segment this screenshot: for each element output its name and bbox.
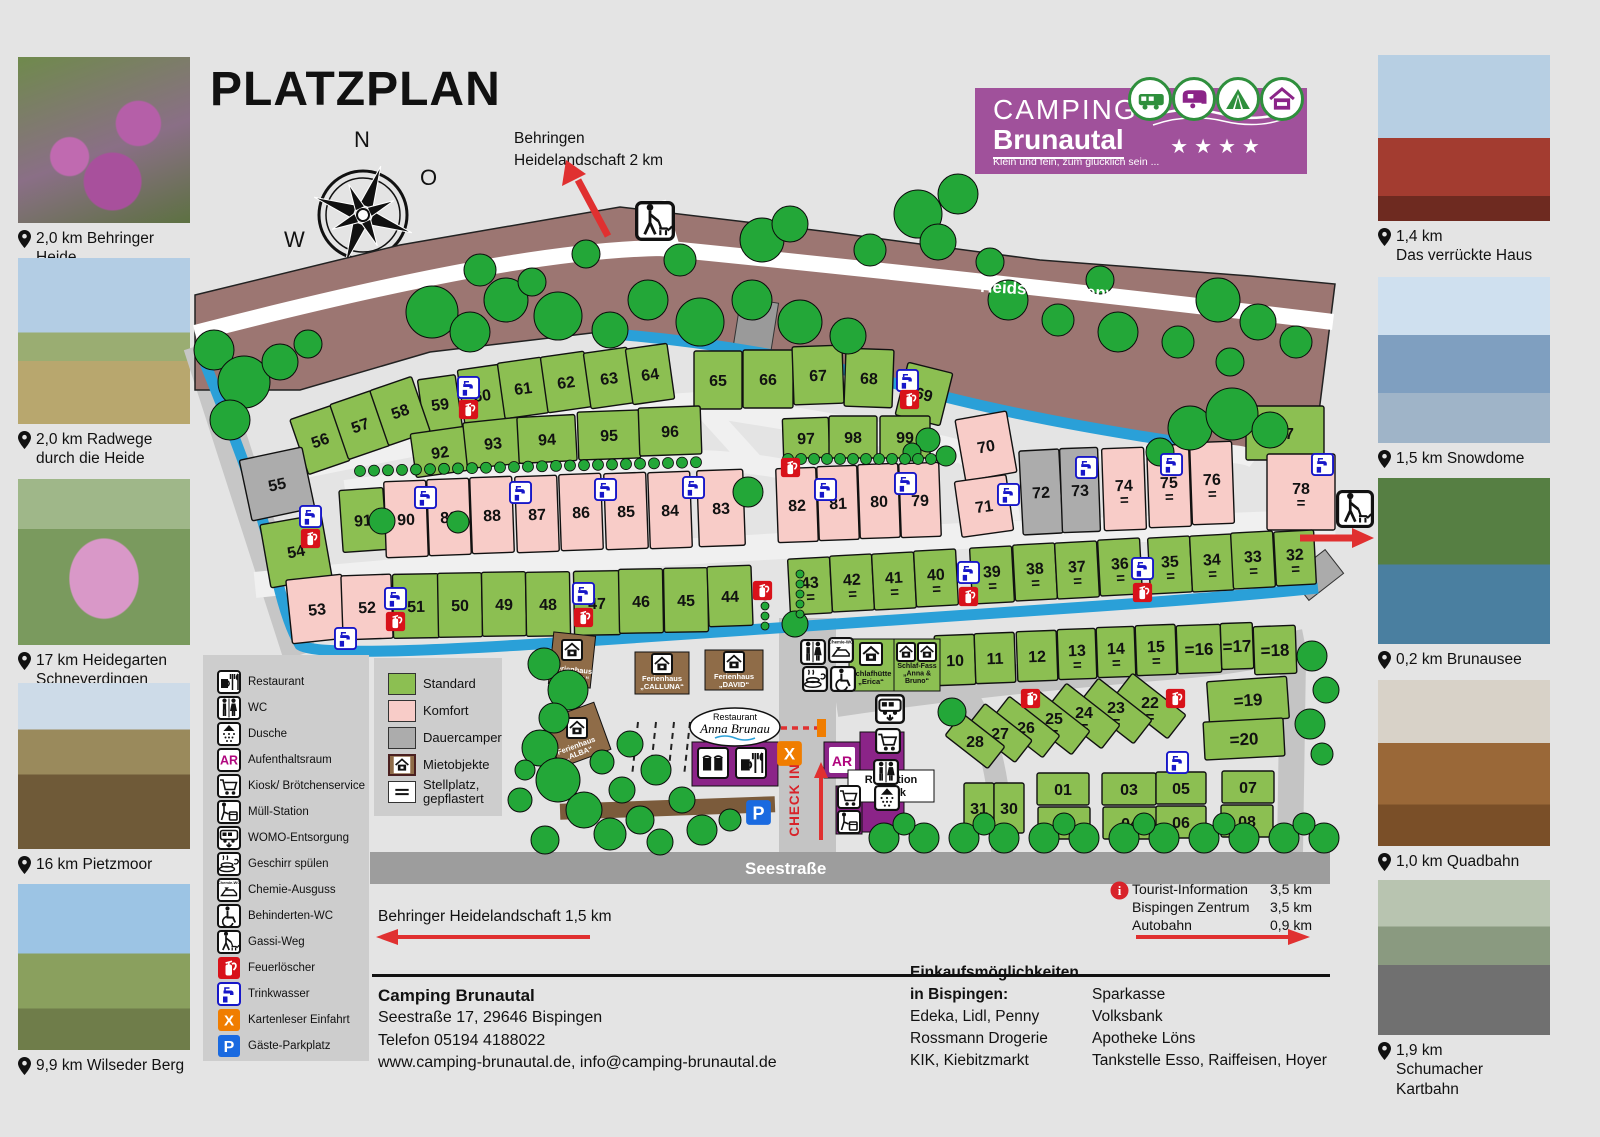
svg-text:=: = [1073,573,1083,590]
kartenleser-icon: X [776,740,803,767]
shopping-item: KIK, Kiebitzmarkt [910,1050,1079,1072]
plot-44: 44 [707,565,753,626]
distance-value: 3,5 km [1270,898,1312,916]
svg-text:33: 33 [1244,549,1263,567]
svg-text:=: = [1116,570,1126,587]
shopping-item: Edeka, Lidl, Penny [910,1006,1079,1028]
plot-52: 52 [341,574,393,640]
svg-text:=: = [890,584,900,601]
feuerloescher-icon [300,528,321,549]
svg-text:22: 22 [1141,695,1159,712]
wc-icon [217,696,241,720]
svg-text:59: 59 [430,396,450,415]
legend-label: Aufenthaltsraum [248,754,332,766]
svg-text:57: 57 [349,415,371,437]
legend-type-mietobjekte: Mietobjekte [388,751,502,778]
plot-03: 03 [1102,773,1156,805]
plot-27: 27 [968,703,1033,762]
svg-text:=: = [1152,653,1162,670]
svg-text:=: = [1120,492,1130,509]
plot-43: 43= [788,557,833,615]
legend-label: Behinderten-WC [248,910,333,922]
plot-90: 90 [384,480,429,557]
legend-item-restaurant: Restaurant [217,669,369,695]
svg-text:39: 39 [983,564,1002,582]
svg-text:=: = [1112,714,1121,731]
plot-01: 01 [1037,773,1089,805]
map-pin-icon [1378,651,1391,669]
feuerloescher-icon [573,607,594,628]
map-labels: Heidschnuckenweg CHECK IN [376,160,1374,945]
plot-95: 95 [577,410,641,460]
photo-snowdome: 1,5 km Snowdome [1378,277,1550,468]
buildings: Ferienhaus„BONITA“ Ferienhaus„CALLUNA“ F… [543,632,940,834]
plot-35: 35= [1148,536,1193,594]
plot-72: 72 [1019,449,1063,535]
plot-31: 31 [964,783,994,833]
legend-label: Stellplatz, gepflastert [423,778,484,805]
plot-15: 15= [1135,624,1177,675]
svg-text:=: = [1165,489,1175,506]
distance-value: 3,5 km [1270,880,1312,898]
plot-85: 85 [604,472,649,549]
trinkwasser-icon [594,478,617,501]
legend-label: WOMO-Entsorgung [248,832,349,844]
svg-text:30: 30 [1000,801,1018,818]
svg-text:Schlafhütte„Erica“: Schlafhütte„Erica“ [851,669,892,686]
legend-item-kiosk: Kiosk/ Brötchenservice [217,773,369,799]
kiosk-icon [217,774,241,798]
plot-39: 39= [970,546,1015,604]
page-title: PLATZPLAN [210,62,501,117]
plot-30: 30 [994,783,1024,833]
svg-text:02: 02 [1055,816,1073,833]
map-pin-icon [18,230,31,248]
legend-item-aufenthaltsraum: ARAufenthaltsraum [217,747,369,773]
footer-divider [372,974,1330,977]
info-icon: i [1110,881,1129,903]
womo-icon [875,694,905,724]
svg-text:65: 65 [709,373,727,390]
svg-text:82: 82 [788,498,806,516]
svg-text:=: = [1297,495,1306,512]
compass-icon [288,135,438,285]
svg-text:28: 28 [966,734,984,751]
legend-label: Feuerlöscher [248,962,315,974]
plot-05: 05 [1156,772,1206,804]
logo-line1: CAMPING [993,94,1138,126]
legend-item-feuerloescher: Feuerlöscher [217,955,369,981]
trinkwasser-icon [509,481,532,504]
svg-text:03: 03 [1120,782,1138,799]
svg-text:=: = [988,578,998,595]
plot-70: 70 [955,411,1017,481]
plot-19: =19 [1207,676,1290,723]
photo-radwege: 2,0 km Radwege durch die Heide [18,258,190,469]
svg-text:Anna Brunau: Anna Brunau [699,721,770,736]
plot-87: 87 [515,475,560,552]
legend-item-gassi: Gassi-Weg [217,929,369,955]
haus-icon [897,643,915,661]
plot-51: 51 [392,574,439,639]
plot-34: 34= [1190,534,1235,592]
plot-96: 96 [638,406,702,456]
distance-value: 0,9 km [1270,916,1312,934]
plot-88: 88 [470,476,515,553]
compass-north: N [354,127,370,153]
svg-text:69: 69 [913,385,934,406]
svg-text:87: 87 [528,507,546,525]
ferienhaus-calluna: Ferienhaus„CALLUNA“ [635,652,689,694]
shopping-item: Tankstelle Esso, Raiffeisen, Hoyer [1092,1050,1327,1072]
plot-45: 45 [663,568,708,633]
plot-92: 92 [410,426,470,477]
svg-text:01: 01 [1054,782,1072,799]
trinkwasser-icon [414,486,437,509]
plot-54: 54 [260,514,332,588]
plot-97: 97 [782,417,829,459]
restaurant-icon [217,670,241,694]
trinkwasser-icon [572,582,595,605]
haus-icon [652,654,672,674]
svg-text:91: 91 [354,512,373,530]
legend-type-dauercamper: Dauercamper [388,724,502,751]
plot-23: 23= [1080,678,1152,744]
svg-text:66: 66 [759,372,777,389]
behringen-arrow-label: Behringen Heidelandschaft 2 km [514,128,663,171]
feuerloescher-icon [217,956,241,980]
plot-24: 24= [1048,683,1120,749]
plot-69: 69 [895,362,953,426]
svg-text:=: = [1112,655,1122,672]
svg-text:93: 93 [483,435,503,454]
distance-label: Tourist-Information [1132,880,1248,898]
plot-58: 58 [370,376,430,445]
svg-text:81: 81 [829,496,847,514]
svg-text:25: 25 [1045,711,1063,728]
compass-rose: N O W S [288,135,438,285]
pitch-type-legend: StandardKomfortDauercamperMietobjekteSte… [374,658,502,816]
plot-04: 04 [1103,807,1157,839]
photo-brunausee: 0,2 km Brunausee [1378,478,1550,669]
aufenthaltsraum-icon: AR [217,748,241,772]
plot-17: =17 [1220,622,1254,669]
plot-48: 48 [525,572,570,637]
trinkwasser-icon [814,478,837,501]
haus-icon [562,640,582,660]
svg-text:=: = [1208,566,1218,583]
plot-75: 75= [1147,444,1192,527]
campsite-street: Seestraße 17, 29646 Bispingen [378,1007,777,1029]
plot-26: 26 [992,696,1060,757]
photo-kartbahn: 1,9 km Schumacher Kartbahn [1378,880,1550,1099]
legend-label: Standard [423,677,476,691]
plot-78: 78= [1267,454,1335,530]
plot-56: 56 [290,405,350,474]
shopping-block-2: Sparkasse Volksbank Apotheke Löns Tankst… [1092,984,1327,1072]
legend-label: Gassi-Weg [248,936,305,948]
svg-text:=: = [1166,568,1176,585]
svg-text:80: 80 [870,494,888,512]
plot-20: =20 [1203,718,1285,760]
plot-50: 50 [437,573,482,638]
plot-80: 80 [858,463,901,538]
svg-text:=16: =16 [1184,640,1213,660]
svg-text:89: 89 [440,510,458,528]
motorhome-icon [1128,77,1172,121]
trinkwasser-icon [1131,557,1154,580]
trinkwasser-icon [1160,453,1183,476]
svg-text:78: 78 [1292,481,1310,498]
legend-label: Kiosk/ Brötchenservice [248,780,365,792]
svg-text:73: 73 [1071,483,1089,501]
svg-text:71: 71 [974,498,994,517]
chemie-icon: Chemie-WC [217,878,241,902]
svg-text:85: 85 [617,504,635,522]
schlafhuette-erica: Schlafhütte„Erica“ [849,639,894,691]
svg-text:08: 08 [1238,814,1256,831]
legend-type-komfort: Komfort [388,697,502,724]
svg-text:AR: AR [220,754,238,768]
ferienhaus-bonita: Ferienhaus„BONITA“ [548,632,595,688]
legend-label: WC [248,702,267,714]
svg-text:Ferienhaus„DAVID“: Ferienhaus„DAVID“ [714,672,754,689]
plot-11: 11 [974,632,1016,683]
plot-94: 94 [517,415,577,464]
svg-text:45: 45 [677,593,695,610]
trinkwasser-icon [457,376,480,399]
plot-33: 33= [1231,531,1276,589]
legend-label: Restaurant [248,676,304,688]
gassi-weg-sign [635,201,675,241]
plot-32: 32= [1274,530,1317,586]
svg-text:=18: =18 [1260,641,1289,661]
svg-text:04: 04 [1121,816,1139,833]
legend-label: Komfort [423,704,469,718]
feuerloescher-icon [899,389,920,410]
trinkwasser-icon [1166,751,1189,774]
compass-west: W [284,227,305,253]
svg-text:=20: =20 [1229,729,1259,749]
svg-text:10: 10 [946,653,964,671]
muell-icon [837,810,861,834]
svg-text:64: 64 [640,366,660,385]
haus-icon [918,643,936,661]
svg-text:15: 15 [1147,639,1165,657]
plot-55: 55 [239,447,314,521]
svg-text:=: = [1249,563,1259,580]
trinkwasser-icon [997,483,1020,506]
svg-text:86: 86 [572,505,590,523]
legend-type-stellplatz: Stellplatz, gepflastert [388,778,502,805]
campsite-name: Camping Brunautal [378,984,777,1007]
legend-label: Mietobjekte [423,758,489,772]
plot-38: 38= [1013,543,1058,601]
legend-label: Dauercamper [423,731,502,745]
plot-41: 41= [872,552,917,610]
legend-item-geschirr: Geschirr spülen [217,851,369,877]
svg-text:07: 07 [1239,780,1257,797]
svg-text:44: 44 [721,589,739,607]
svg-text:=: = [806,589,816,606]
svg-text:P: P [752,803,764,823]
attraction-caption: 2,0 km Radwege durch die Heide [36,430,152,469]
geschirr-icon [802,666,828,692]
svg-text:83: 83 [712,501,730,519]
parkplatz-icon: P [217,1034,241,1058]
svg-text:CHECK IN: CHECK IN [787,763,802,836]
legend-item-chemie: Chemie-WCChemie-Ausguss [217,877,369,903]
compass-east: O [420,165,437,191]
ferienhaus-alba: Ferienhaus„ALBA“ [543,702,611,767]
wc-icon [873,759,899,785]
svg-text:Chemie-WC: Chemie-WC [218,880,241,885]
plot-61: 61 [497,357,548,419]
svg-text:Ferienhaus„BONITA“: Ferienhaus„BONITA“ [551,663,593,684]
behinderten_wc-icon [217,904,241,928]
svg-text:24: 24 [1075,705,1093,722]
legend-label: Kartenleser Einfahrt [248,1014,350,1026]
legend-item-wc: WC [217,695,369,721]
svg-text:AR: AR [832,753,852,769]
legend-item-dusche: Dusche [217,721,369,747]
plot-98: 98 [829,416,877,458]
svg-text:68: 68 [860,371,878,389]
plot-84: 84 [648,471,693,548]
chemie-icon: Chemie-WC [828,637,854,663]
platzplan-poster: PLATZPLAN N O W S Behringen Heidelandsch… [0,0,1600,1137]
compass-south: S [356,267,371,293]
svg-text:=19: =19 [1233,690,1263,711]
svg-text:46: 46 [632,594,650,611]
plot-28: 28 [945,713,1005,768]
feuerloescher-icon [1132,582,1153,603]
plot-14: 14= [1096,626,1136,677]
svg-text:13: 13 [1068,643,1086,661]
plot-74: 74= [1102,447,1147,530]
legend-item-behinderten_wc: Behinderten-WC [217,903,369,929]
checkin-label: CHECK IN [787,762,828,840]
feuerloescher-icon [780,457,801,478]
plot-79: 79 [899,462,942,537]
dusche-icon [874,785,900,811]
campsite-phone: Telefon 05194 4188022 [378,1030,777,1052]
attraction-caption: 1,4 km Das verrückte Haus [1396,227,1532,266]
plot-08: 08 [1221,805,1273,837]
svg-text:Schlaf-Fass„Anna &Bruno“: Schlaf-Fass„Anna &Bruno“ [897,663,936,685]
svg-text:i: i [1118,883,1122,898]
arrow-right-mid [1300,528,1374,548]
behinderten-wc-icon [830,666,856,692]
svg-text:90: 90 [397,512,415,530]
caravan-icon [1172,77,1216,121]
plot-63: 63 [583,347,634,409]
svg-text:43: 43 [801,575,820,593]
svg-text:54: 54 [286,543,307,563]
trinkwasser-icon [1075,456,1098,479]
barrier [781,719,826,737]
internal-roads [255,404,1335,585]
svg-text:88: 88 [483,508,501,526]
gassi-icon [217,930,241,954]
svg-text:84: 84 [661,503,679,521]
kiosk-icon [875,728,901,754]
legend-item-womo: WOMO-Entsorgung [217,825,369,851]
dusche-icon [217,722,241,746]
plot-06: 06 [1156,806,1206,838]
svg-text:23: 23 [1107,700,1125,717]
plot-25: 25= [1018,689,1090,755]
behringer-arrow-label: Behringer Heidelandschaft 1,5 km [378,908,612,926]
attraction-caption: 1,9 km Schumacher Kartbahn [1396,1041,1550,1099]
svg-text:=: = [1291,561,1301,578]
svg-text:99: 99 [896,430,914,447]
legend-label: Geschirr spülen [248,858,329,870]
svg-text:49: 49 [495,597,513,614]
logo-stars: ★★★★ [1153,134,1283,159]
attraction-caption: 16 km Pietzmoor [36,855,152,874]
svg-text:35: 35 [1161,554,1180,572]
haus-icon [567,718,587,738]
svg-text:11: 11 [986,651,1004,669]
svg-text:98: 98 [844,430,862,447]
facilities-legend: Restaurant WC Dusche ARAufenthaltsraum K… [203,655,369,1061]
photo-wilseder-berg: 9,9 km Wilseder Berg [18,884,190,1075]
haus-icon [393,756,411,774]
distance-label: Bispingen Zentrum [1132,898,1250,916]
photo-behringer-heide: 2,0 km Behringer Heide [18,57,190,268]
gassi-weg-sign [1336,490,1374,528]
svg-text:94: 94 [538,432,557,450]
heidschnuckenweg-label: Heidschnuckenweg [980,277,1139,304]
svg-text:61: 61 [513,380,533,399]
stellplatz-icon [390,782,414,802]
svg-text:42: 42 [843,572,862,590]
svg-text:=: = [1031,575,1041,592]
svg-text:RezeptionKiosk: RezeptionKiosk [865,774,918,799]
trinkwasser-icon [217,982,241,1006]
plot-59: 59 [417,375,462,434]
svg-text:67: 67 [809,368,827,386]
plot-16: =16 [1176,624,1222,674]
shopping-item: Rossmann Drogerie [910,1028,1079,1050]
svg-text:Chemie-WC: Chemie-WC [829,640,853,645]
shopping-item: Sparkasse [1092,984,1327,1006]
trinkwasser-icon [896,369,919,392]
plot-36: 36= [1098,538,1143,596]
svg-text:=: = [1146,709,1155,726]
svg-text:34: 34 [1203,552,1222,570]
svg-text:Ferienhaus„CALLUNA“: Ferienhaus„CALLUNA“ [640,674,684,691]
attraction-caption: 1,5 km Snowdome [1396,449,1524,468]
trinkwasser-icon [1311,453,1334,476]
shopping-title: Einkaufsmöglichkeiten [910,962,1079,984]
svg-text:=: = [932,581,942,598]
wc-icon [800,639,826,665]
plot-67: 67 [792,345,844,405]
svg-text:P: P [224,1039,235,1056]
plot-40: 40= [914,549,959,607]
plot-82: 82 [776,467,819,542]
plot-10: 10 [934,634,976,685]
campsite-web: www.camping-brunautal.de, info@camping-b… [378,1052,777,1074]
plot-89: 89 [427,478,472,555]
parking-area [560,722,775,820]
plot-12: 12 [1016,630,1058,681]
legend-item-trinkwasser: Trinkwasser [217,981,369,1007]
svg-text:60: 60 [472,387,492,406]
svg-text:=: = [1073,657,1083,674]
